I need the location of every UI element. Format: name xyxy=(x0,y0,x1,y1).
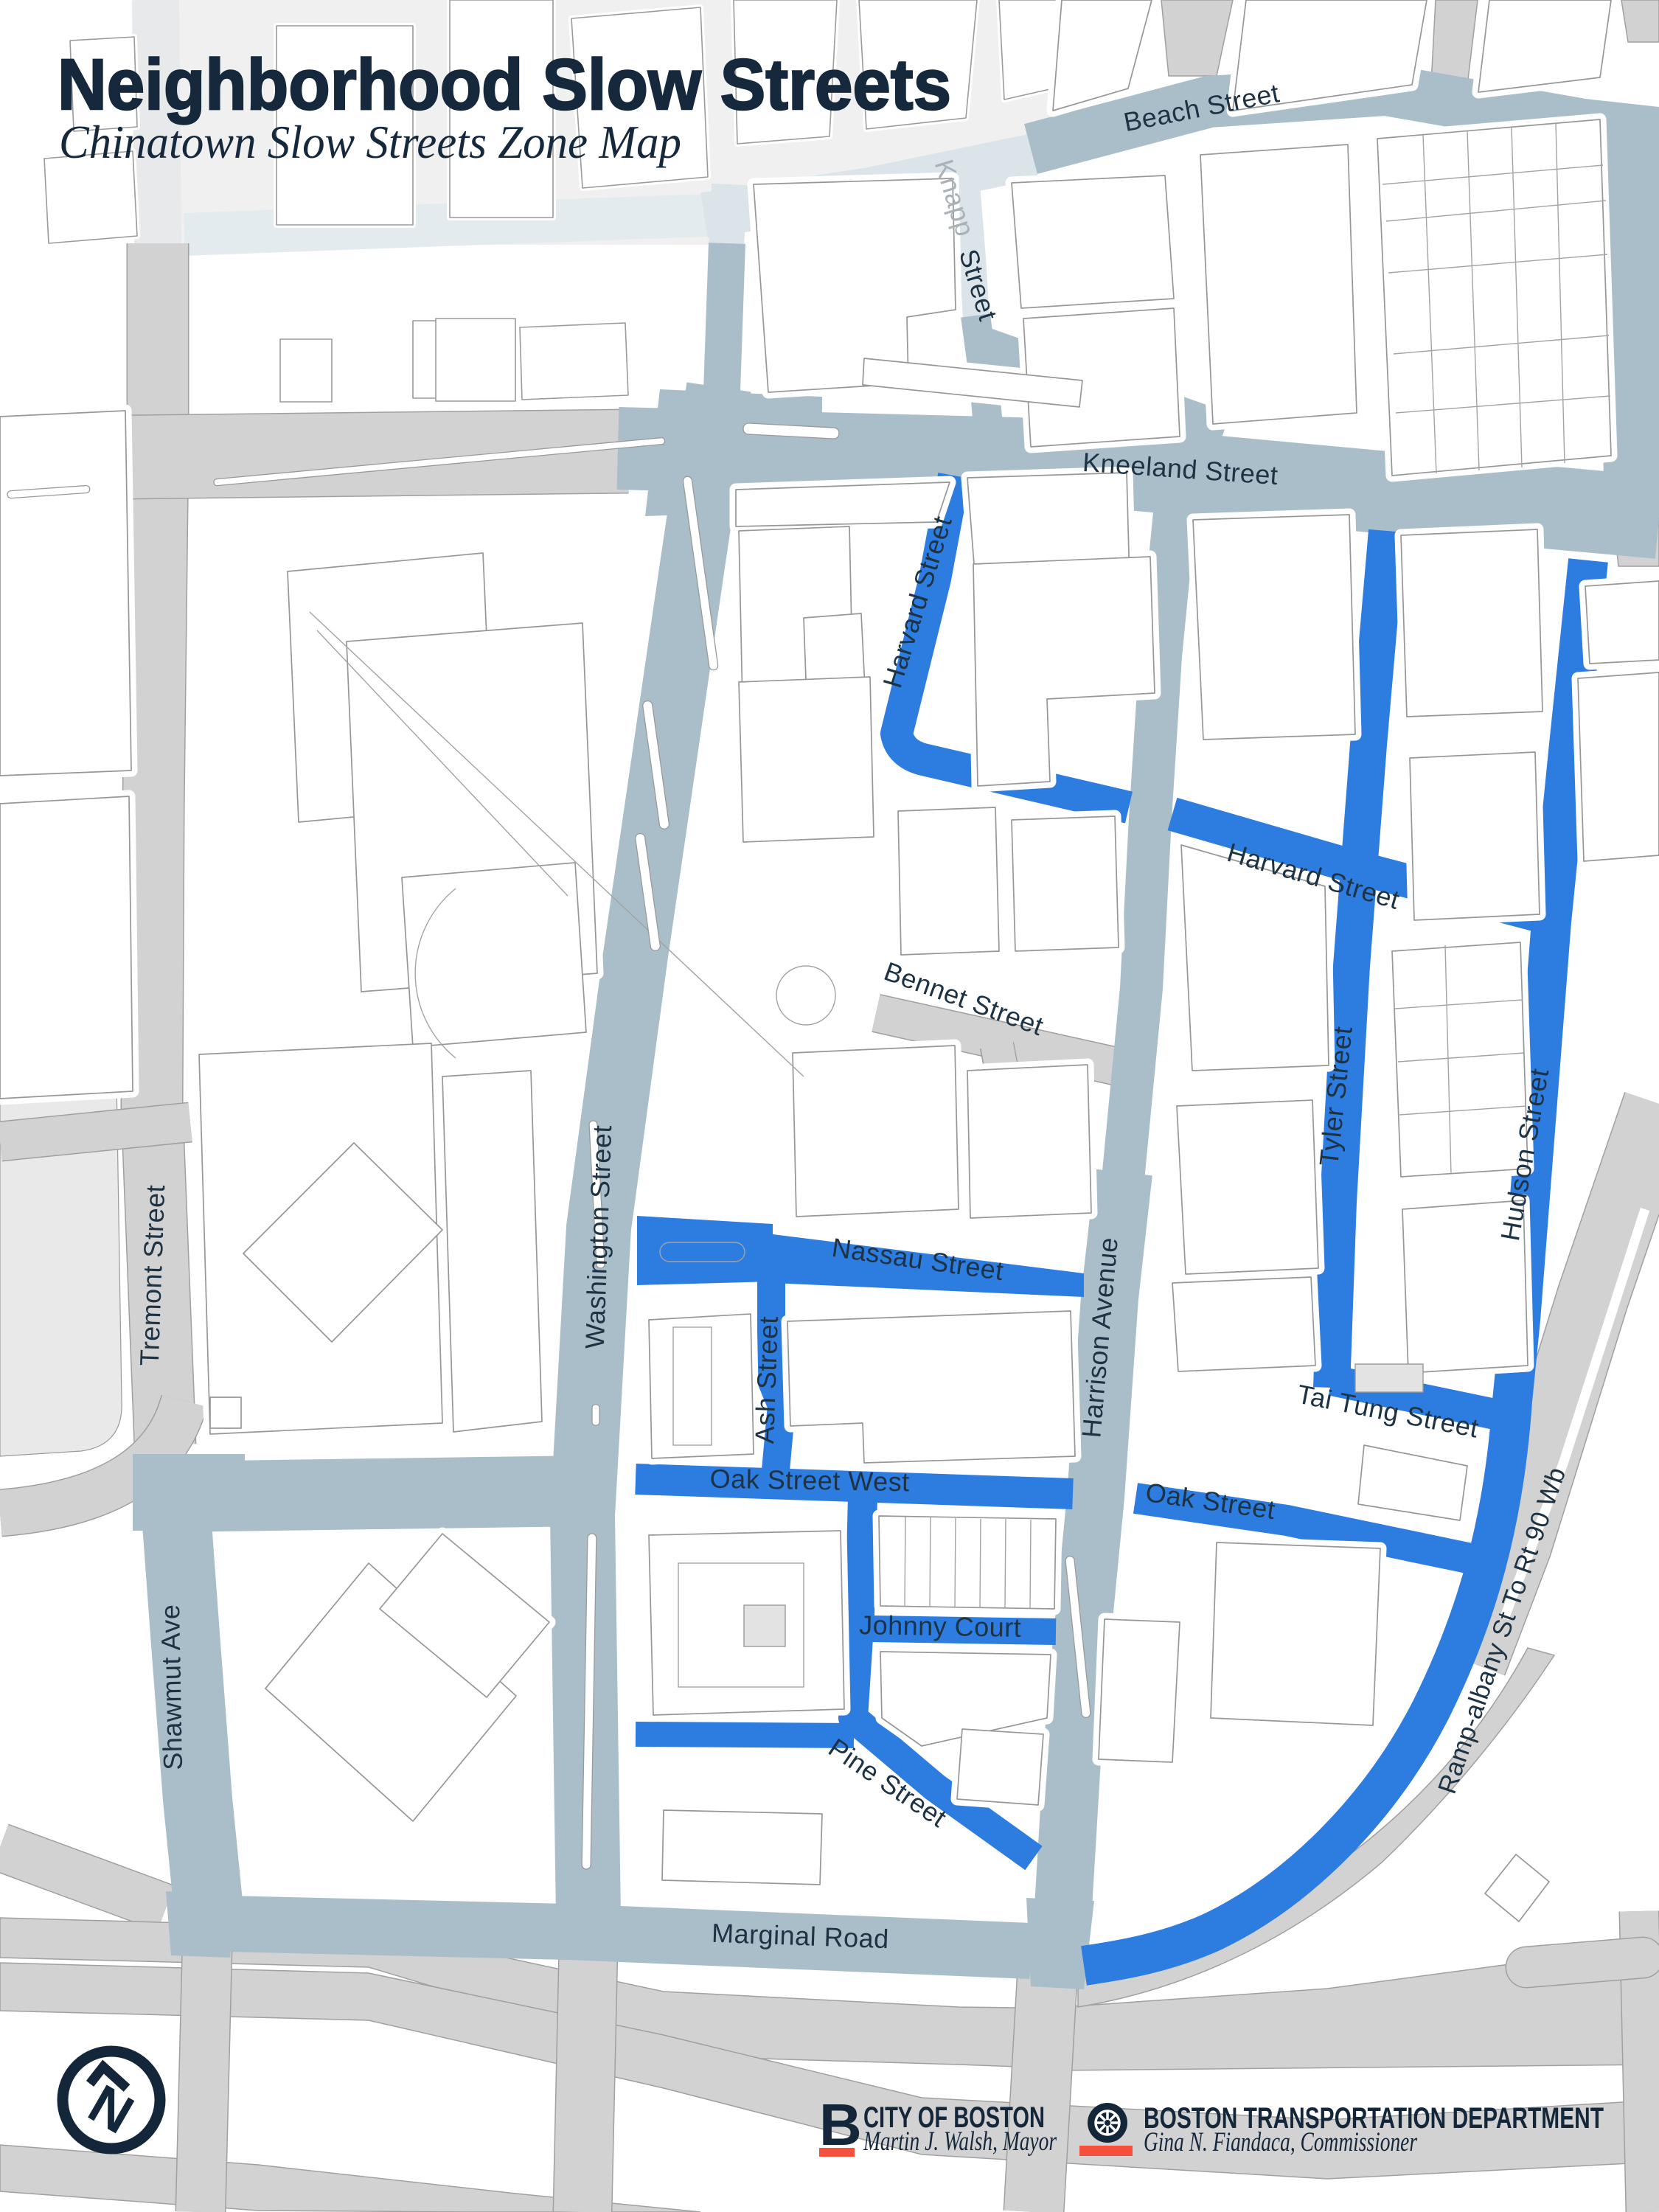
svg-text:Chinatown Slow Streets Zone Ma: Chinatown Slow Streets Zone Map xyxy=(59,116,681,168)
svg-text:Gina N. Fiandaca, Commissioner: Gina N. Fiandaca, Commissioner xyxy=(1144,2127,1417,2157)
svg-text:Tremont Street: Tremont Street xyxy=(134,1184,171,1366)
svg-text:B: B xyxy=(819,2092,862,2157)
svg-text:Neighborhood Slow Streets: Neighborhood Slow Streets xyxy=(58,44,951,125)
svg-text:Marginal Road: Marginal Road xyxy=(711,1918,889,1954)
svg-text:Oak Street West: Oak Street West xyxy=(709,1464,910,1498)
svg-text:Ash Street: Ash Street xyxy=(749,1315,784,1444)
svg-text:Johnny Court: Johnny Court xyxy=(859,1610,1022,1643)
svg-text:Martin J. Walsh, Mayor: Martin J. Walsh, Mayor xyxy=(863,2126,1057,2157)
svg-text:Shawmut Ave: Shawmut Ave xyxy=(155,1604,188,1770)
